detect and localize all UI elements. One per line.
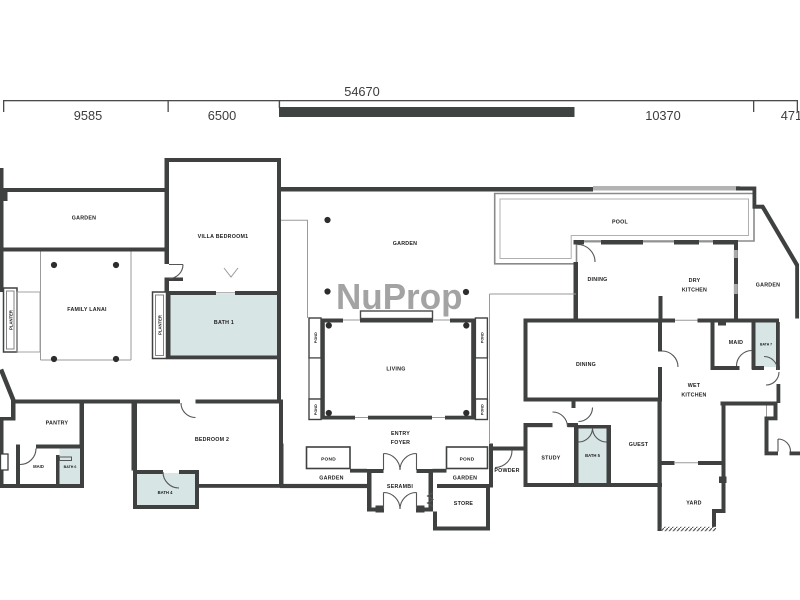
svg-text:WET: WET bbox=[688, 383, 701, 389]
svg-text:10370: 10370 bbox=[645, 108, 681, 123]
svg-text:54670: 54670 bbox=[344, 84, 380, 99]
svg-text:6500: 6500 bbox=[208, 108, 236, 123]
svg-text:PLANTER: PLANTER bbox=[9, 310, 14, 330]
svg-text:POND: POND bbox=[314, 404, 318, 415]
svg-text:POND: POND bbox=[480, 332, 484, 343]
svg-text:BATH 1: BATH 1 bbox=[214, 320, 234, 326]
svg-text:POND: POND bbox=[314, 332, 318, 343]
svg-text:POND: POND bbox=[460, 457, 475, 463]
svg-text:BATH 7: BATH 7 bbox=[760, 343, 772, 347]
svg-text:VILLA BEDROOM1: VILLA BEDROOM1 bbox=[198, 234, 249, 240]
svg-text:STORE: STORE bbox=[454, 501, 474, 507]
svg-text:GARDEN: GARDEN bbox=[72, 216, 96, 222]
svg-text:PANTRY: PANTRY bbox=[46, 421, 69, 427]
svg-text:9585: 9585 bbox=[74, 108, 102, 123]
svg-text:GARDEN: GARDEN bbox=[756, 283, 780, 289]
svg-text:KITCHEN: KITCHEN bbox=[682, 288, 707, 294]
svg-text:POND: POND bbox=[321, 457, 336, 463]
svg-text:BATH 4: BATH 4 bbox=[158, 490, 173, 495]
svg-text:DINING: DINING bbox=[576, 362, 596, 368]
svg-text:FOYER: FOYER bbox=[391, 440, 411, 446]
svg-text:DRY: DRY bbox=[689, 278, 701, 284]
svg-text:LIVING: LIVING bbox=[386, 367, 405, 373]
svg-text:POND: POND bbox=[480, 404, 484, 415]
svg-text:STUDY: STUDY bbox=[541, 456, 560, 462]
svg-text:POWDER: POWDER bbox=[494, 468, 519, 474]
svg-text:DINING: DINING bbox=[587, 277, 607, 283]
svg-text:POOL: POOL bbox=[612, 220, 629, 226]
svg-text:FAMILY LANAI: FAMILY LANAI bbox=[67, 307, 107, 313]
svg-text:GUEST: GUEST bbox=[629, 442, 649, 448]
svg-text:MAID: MAID bbox=[729, 340, 744, 346]
svg-text:BATH 5: BATH 5 bbox=[585, 453, 600, 458]
svg-text:MAID: MAID bbox=[33, 464, 44, 469]
svg-text:GARDEN: GARDEN bbox=[393, 241, 417, 247]
svg-text:GARDEN: GARDEN bbox=[453, 476, 477, 482]
svg-text:KITCHEN: KITCHEN bbox=[681, 393, 706, 399]
svg-text:SERAMBI: SERAMBI bbox=[387, 484, 413, 490]
svg-text:BATH 6: BATH 6 bbox=[64, 465, 77, 469]
svg-text:BEDROOM 2: BEDROOM 2 bbox=[195, 437, 229, 443]
svg-text:YARD: YARD bbox=[686, 501, 702, 507]
svg-text:GARDEN: GARDEN bbox=[319, 476, 343, 482]
svg-text:4715: 4715 bbox=[781, 108, 800, 123]
svg-text:PLANTER: PLANTER bbox=[158, 315, 163, 335]
svg-text:ENTRY: ENTRY bbox=[391, 431, 410, 437]
